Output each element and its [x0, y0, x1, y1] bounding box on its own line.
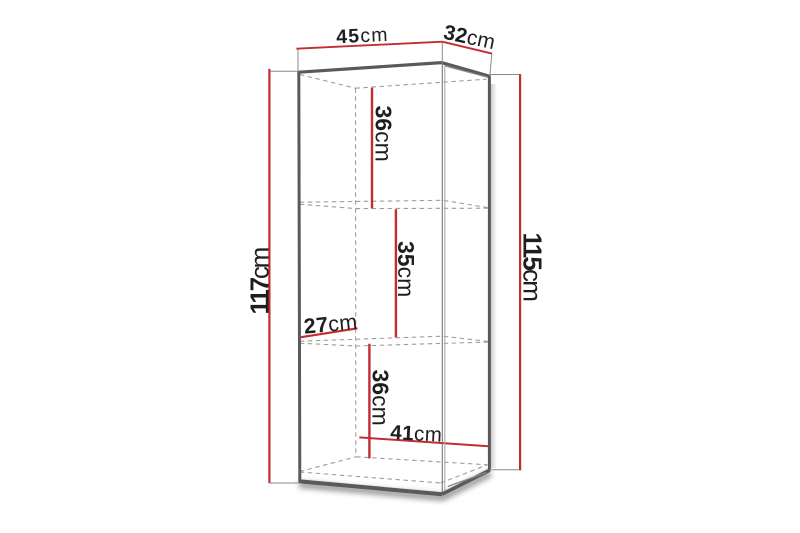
svg-text:41cm: 41cm [390, 421, 443, 447]
svg-text:35cm: 35cm [393, 241, 419, 297]
svg-text:115cm: 115cm [518, 233, 548, 301]
svg-text:45cm: 45cm [336, 24, 389, 48]
svg-text:32cm: 32cm [441, 21, 497, 54]
svg-text:117cm: 117cm [245, 248, 275, 314]
svg-text:36cm: 36cm [371, 106, 397, 162]
svg-text:36cm: 36cm [368, 370, 394, 426]
svg-text:27cm: 27cm [303, 310, 359, 339]
